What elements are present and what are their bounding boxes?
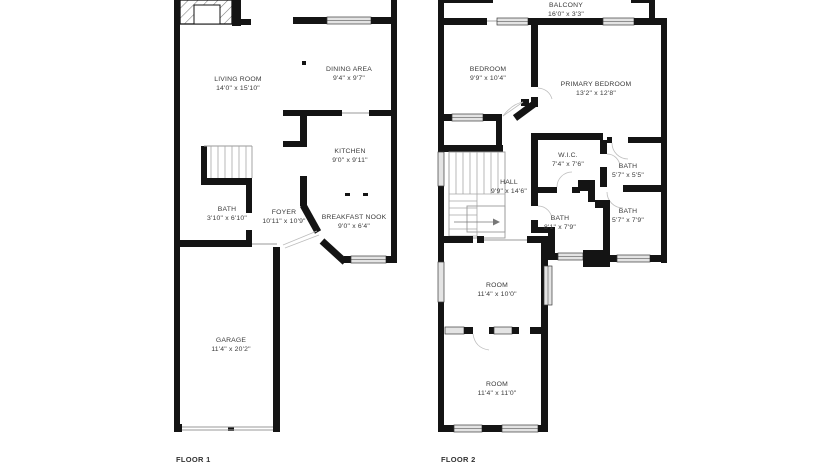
room-name: ROOM xyxy=(477,281,516,290)
room-name: BATH xyxy=(612,162,644,171)
room-label-bath-middle: BATH 8'1" x 7'9" xyxy=(544,214,576,232)
room-dims: 7'4" x 7'6" xyxy=(552,160,584,169)
room-label-dining-area: DINING AREA 9'4" x 9'7" xyxy=(326,65,372,83)
room-name: DINING AREA xyxy=(326,65,372,74)
room-name: KITCHEN xyxy=(332,147,367,156)
room-label-bath-top: BATH 5'7" x 5'5" xyxy=(612,162,644,180)
room-dims: 5'7" x 5'5" xyxy=(612,171,644,180)
room-name: BATH xyxy=(544,214,576,223)
room-label-bedroom: BEDROOM 9'9" x 10'4" xyxy=(470,65,507,83)
room-dims: 13'2" x 12'8" xyxy=(561,89,632,98)
room-label-kitchen: KITCHEN 9'0" x 9'11" xyxy=(332,147,367,165)
room-dims: 11'4" x 11'0" xyxy=(478,389,517,398)
room-label-bath-right: BATH 5'7" x 7'9" xyxy=(612,207,644,225)
room-dims: 9'9" x 10'4" xyxy=(470,74,507,83)
room-label-hall: HALL 9'9" x 14'6" xyxy=(491,178,527,196)
room-name: BATH xyxy=(207,205,247,214)
room-name: ROOM xyxy=(478,380,517,389)
room-name: BEDROOM xyxy=(470,65,507,74)
room-dims: 11'4" x 20'2" xyxy=(211,345,250,354)
room-name: BALCONY xyxy=(548,1,584,10)
room-name: W.I.C. xyxy=(552,151,584,160)
room-dims: 9'0" x 6'4" xyxy=(322,222,387,231)
room-dims: 10'11" x 10'9" xyxy=(262,217,305,226)
room-label-room-lower: ROOM 11'4" x 11'0" xyxy=(478,380,517,398)
room-label-foyer: FOYER 10'11" x 10'9" xyxy=(262,208,305,226)
room-name: BREAKFAST NOOK xyxy=(322,213,387,222)
room-dims: 3'10" x 6'10" xyxy=(207,214,247,223)
room-label-garage: GARAGE 11'4" x 20'2" xyxy=(211,336,250,354)
room-name: LIVING ROOM xyxy=(214,75,262,84)
floorplan-drawing xyxy=(0,0,835,467)
room-label-primary-bedroom: PRIMARY BEDROOM 13'2" x 12'8" xyxy=(561,80,632,98)
room-name: GARAGE xyxy=(211,336,250,345)
room-label-bath-floor1: BATH 3'10" x 6'10" xyxy=(207,205,247,223)
room-label-breakfast-nook: BREAKFAST NOOK 9'0" x 6'4" xyxy=(322,213,387,231)
room-dims: 11'4" x 10'0" xyxy=(477,290,516,299)
floor2-caption: FLOOR 2 xyxy=(441,455,476,464)
room-name: BATH xyxy=(612,207,644,216)
room-label-room-upper: ROOM 11'4" x 10'0" xyxy=(477,281,516,299)
room-label-balcony: BALCONY 16'0" x 3'3" xyxy=(548,1,584,19)
room-name: HALL xyxy=(491,178,527,187)
room-dims: 16'0" x 3'3" xyxy=(548,10,584,19)
room-dims: 14'0" x 15'10" xyxy=(214,84,262,93)
room-dims: 5'7" x 7'9" xyxy=(612,216,644,225)
room-dims: 9'0" x 9'11" xyxy=(332,156,367,165)
floor1-caption: FLOOR 1 xyxy=(176,455,211,464)
room-dims: 8'1" x 7'9" xyxy=(544,223,576,232)
room-dims: 9'4" x 9'7" xyxy=(326,74,372,83)
room-label-wic: W.I.C. 7'4" x 7'6" xyxy=(552,151,584,169)
floorplan-page: LIVING ROOM 14'0" x 15'10" DINING AREA 9… xyxy=(0,0,835,467)
room-name: FOYER xyxy=(262,208,305,217)
room-name: PRIMARY BEDROOM xyxy=(561,80,632,89)
room-dims: 9'9" x 14'6" xyxy=(491,187,527,196)
room-label-living-room: LIVING ROOM 14'0" x 15'10" xyxy=(214,75,262,93)
